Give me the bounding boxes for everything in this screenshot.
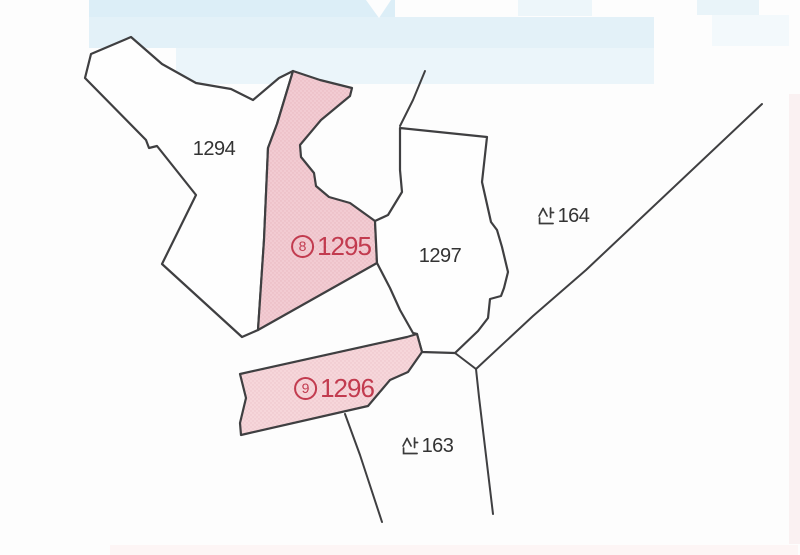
hangul-san-glyph <box>401 437 419 455</box>
boundary-line-san163-west <box>345 414 382 522</box>
parcel-1295-lot-number: 1295 <box>317 233 371 259</box>
parcel-san164-lot-number: 164 <box>558 206 590 226</box>
parcel-1296-lot-number: 1296 <box>320 375 374 401</box>
circled-number-8-icon: 8 <box>291 235 314 258</box>
boundary-line-junction-link <box>455 353 476 369</box>
parcel-1297-region <box>375 128 508 353</box>
parcel-label-1297: 1297 <box>419 246 462 266</box>
boundary-line-san163-east <box>476 369 493 514</box>
parcel-label-1295: 8 1295 <box>291 233 371 259</box>
boundary-line-san164-diagonal <box>476 104 762 369</box>
parcel-label-san163: 163 <box>401 436 454 456</box>
water-tint-band <box>89 0 789 84</box>
cadastral-map-canvas: 1294 8 1295 1297 9 1296 164 163 <box>0 0 800 555</box>
parcel-label-san164: 164 <box>537 206 590 226</box>
parcel-label-1294: 1294 <box>193 139 236 159</box>
map-svg <box>0 0 800 555</box>
parcel-san163-lot-number: 163 <box>422 436 454 456</box>
parcel-label-1296: 9 1296 <box>294 375 374 401</box>
circled-number-9-icon: 9 <box>294 377 317 400</box>
hangul-san-glyph <box>537 207 555 225</box>
